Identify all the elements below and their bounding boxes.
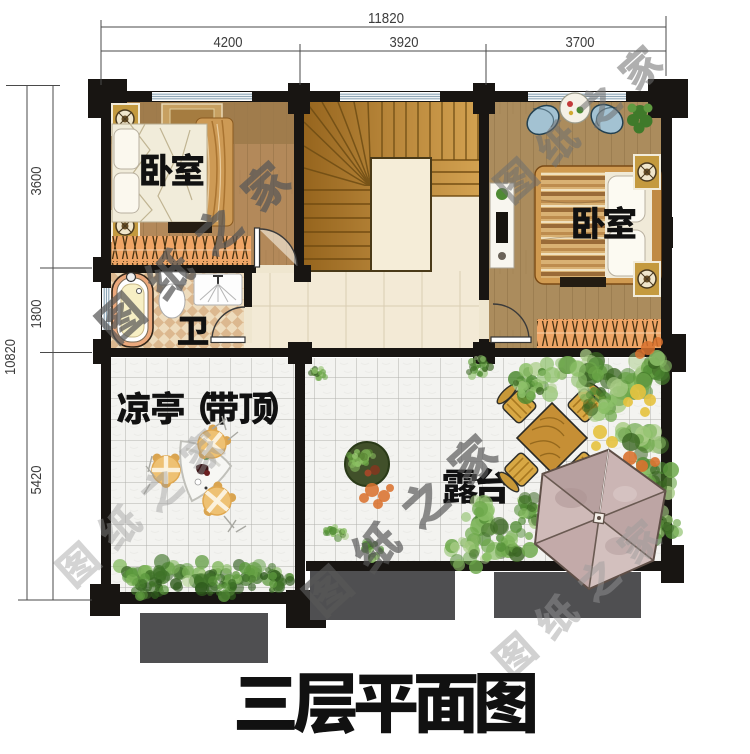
svg-text:5420: 5420 — [28, 466, 45, 495]
svg-text:11820: 11820 — [368, 10, 404, 27]
svg-text:3600: 3600 — [28, 167, 45, 196]
svg-text:10820: 10820 — [2, 339, 19, 375]
svg-text:3920: 3920 — [390, 34, 419, 51]
svg-text:4200: 4200 — [214, 34, 243, 51]
svg-text:1800: 1800 — [28, 300, 45, 329]
svg-text:3700: 3700 — [566, 34, 595, 51]
